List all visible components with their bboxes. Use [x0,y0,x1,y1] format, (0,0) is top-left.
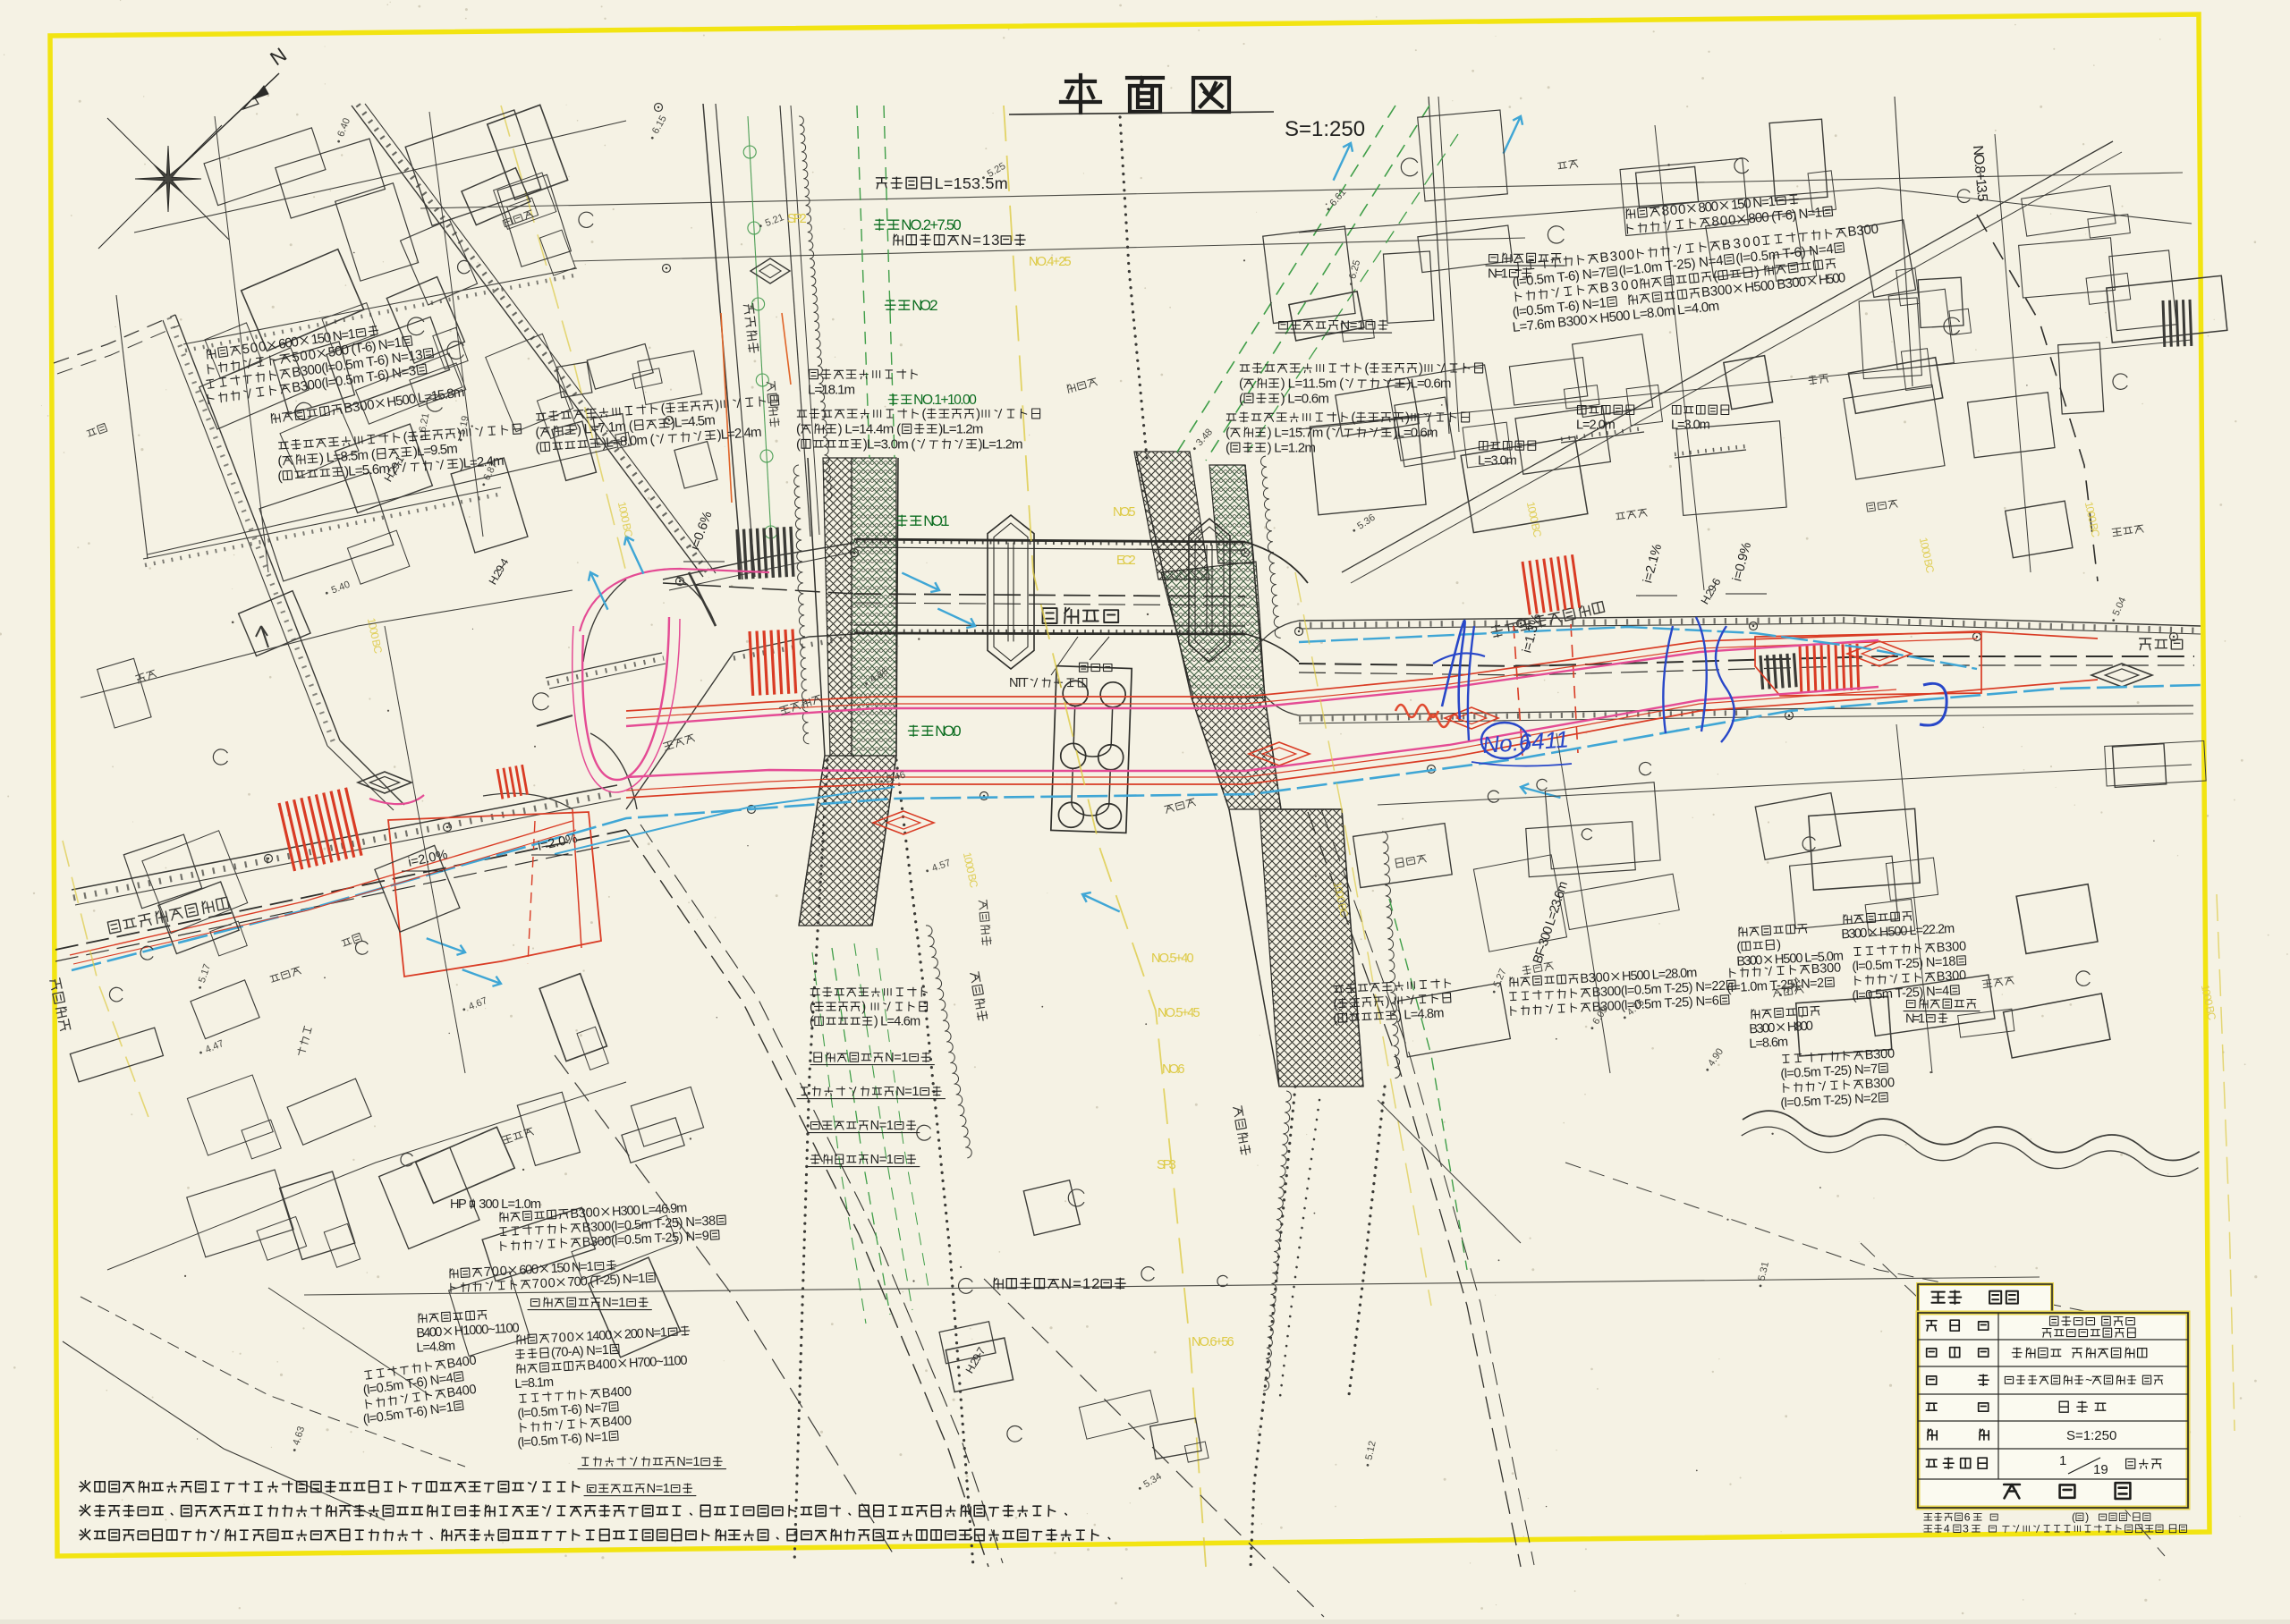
svg-text:NO.6: NO.6 [1162,1062,1185,1077]
svg-text:B300: B300 [1864,1076,1895,1092]
svg-text:700: 700 [531,1276,556,1291]
svg-text:(: ( [796,422,801,437]
svg-text:): ) [976,407,980,422]
svg-text:) L=4.8m: ) L=4.8m [1397,1006,1445,1023]
svg-text:HP: HP [450,1197,467,1212]
svg-text:)L=1.2m: )L=1.2m [938,422,983,437]
svg-text:N=1: N=1 [647,1482,670,1496]
svg-text:(: ( [1333,1011,1338,1026]
svg-text:) L=11.5m (: ) L=11.5m ( [1281,376,1344,392]
svg-text:(: ( [1736,940,1742,954]
svg-text:L=2.0m: L=2.0m [1576,418,1616,432]
svg-text:): ) [2085,1511,2089,1524]
svg-text:L=3.0m: L=3.0m [1478,453,1517,468]
svg-text:)L=2.4m: )L=2.4m [459,453,505,471]
svg-text:N=1: N=1 [895,1085,919,1099]
svg-text:(: ( [921,407,926,422]
svg-text:(: ( [1239,376,1243,392]
svg-text:)L=3.0m (: )L=3.0m ( [863,436,916,452]
svg-text:): ) [1385,994,1390,1009]
svg-text:(: ( [810,1000,814,1014]
svg-text:19: 19 [2093,1462,2108,1477]
svg-text:B300: B300 [1580,970,1610,986]
svg-text:L=18.1m: L=18.1m [808,383,855,398]
svg-text:B400: B400 [587,1358,617,1374]
svg-text:(: ( [1364,361,1369,376]
svg-text:): ) [1419,361,1423,376]
svg-text:B300: B300 [1936,940,1966,956]
svg-text:NO.5+40: NO.5+40 [1151,952,1194,966]
svg-text:N=1: N=1 [1488,266,1508,282]
svg-text:SP3: SP3 [1157,1158,1176,1172]
svg-text:(: ( [1351,410,1355,426]
svg-text:B300: B300 [1936,968,1966,985]
svg-text:B300: B300 [1811,961,1841,977]
svg-text:)L=2.4m: )L=2.4m [717,425,762,443]
svg-text:~: ~ [2085,1373,2092,1387]
svg-text:800: 800 [1661,202,1686,219]
svg-text:)L=9.5m: )L=9.5m [412,441,458,459]
svg-text:NO.6+56: NO.6+56 [1192,1335,1234,1349]
svg-text:) L=4.6m: ) L=4.6m [874,1015,920,1029]
svg-text:N=12: N=12 [1061,1275,1100,1292]
svg-text:S=1:250: S=1:250 [2066,1428,2116,1443]
svg-text:800: 800 [1698,199,1719,216]
svg-text:200 N=1: 200 N=1 [623,1325,667,1341]
svg-text:B300: B300 [570,1205,600,1222]
svg-text:NO.1: NO.1 [923,512,949,529]
svg-text:B300: B300 [1736,953,1763,969]
svg-text:N=1: N=1 [676,1455,700,1469]
svg-text:NO.5: NO.5 [1113,505,1136,520]
svg-text:B300: B300 [1701,282,1733,300]
svg-text:)L=4.5m: )L=4.5m [670,412,716,430]
svg-text:N=1: N=1 [870,1153,894,1167]
svg-text:)L=1.2m: )L=1.2m [979,436,1023,452]
svg-text:NO.2+7.50: NO.2+7.50 [901,216,961,233]
svg-text:L=8.6m: L=8.6m [1749,1035,1789,1051]
svg-text:L=153.5m: L=153.5m [935,174,1008,192]
svg-text:N=1: N=1 [602,1296,625,1310]
svg-text:L=8.1m: L=8.1m [514,1375,555,1391]
svg-text:(: ( [810,1015,814,1029]
svg-text:B300: B300 [1749,1021,1776,1037]
svg-text:B400: B400 [601,1384,632,1400]
svg-text:N=1: N=1 [1905,1011,1925,1026]
svg-text:B300: B300 [1864,1047,1895,1063]
svg-text:(: ( [796,436,801,452]
svg-text:(: ( [1239,391,1243,406]
svg-text:NO.5+45: NO.5+45 [1158,1006,1200,1020]
svg-text:L=4.8m: L=4.8m [416,1339,456,1355]
svg-text:600: 600 [519,1263,539,1278]
svg-text:B400: B400 [416,1325,443,1341]
svg-text:800: 800 [1711,213,1736,230]
svg-text:S=1:250: S=1:250 [1285,117,1365,141]
svg-text:N=1: N=1 [870,1119,894,1133]
svg-text:B400: B400 [601,1414,632,1430]
svg-text:(: ( [1333,997,1338,1011]
svg-text:6: 6 [1964,1511,1971,1524]
svg-text:SP2: SP2 [787,212,807,226]
svg-text:) L=1.2m: ) L=1.2m [1268,440,1316,455]
svg-text:4: 4 [1944,1523,1950,1535]
svg-text:): ) [1777,938,1782,952]
svg-text:N=1: N=1 [1340,318,1364,334]
svg-text:H800: H800 [1786,1019,1813,1036]
svg-text:1400: 1400 [586,1328,613,1344]
svg-text:): ) [861,1000,866,1014]
svg-text:N=13: N=13 [961,232,1000,249]
svg-text:B300: B300 [1841,926,1868,943]
svg-text:1: 1 [2059,1453,2066,1468]
svg-text:L=3.0m: L=3.0m [1671,418,1710,432]
svg-text:NO.2: NO.2 [912,297,937,314]
svg-text:B300: B300 [1847,222,1879,241]
svg-text:(: ( [1226,440,1230,455]
svg-text:NTT: NTT [1009,676,1029,690]
svg-text:NO.0: NO.0 [935,723,961,740]
svg-text:700: 700 [484,1265,508,1280]
svg-text:(: ( [1226,426,1230,441]
svg-text:EC2: EC2 [1116,554,1136,568]
svg-text:300 L=1.0m: 300 L=1.0m [479,1197,541,1212]
svg-text:NO.1+10.00: NO.1+10.00 [913,393,977,408]
svg-text:) L=14.4m (: ) L=14.4m ( [838,422,902,437]
svg-text:N=1: N=1 [885,1051,908,1065]
svg-text:) L=15.7m (: ) L=15.7m ( [1268,426,1331,441]
svg-text:3: 3 [1963,1523,1969,1535]
svg-text:700: 700 [551,1331,575,1346]
svg-text:H500: H500 [1818,270,1846,288]
svg-text:H700~1100: H700~1100 [629,1354,688,1371]
svg-text:NO.4+25: NO.4+25 [1029,255,1072,269]
svg-text:) L=0.6m: ) L=0.6m [1281,391,1329,406]
svg-text:)L=0.6m: )L=0.6m [1406,376,1451,392]
svg-text:)L=0.6m: )L=0.6m [1393,426,1438,441]
svg-text:): ) [1405,410,1410,426]
